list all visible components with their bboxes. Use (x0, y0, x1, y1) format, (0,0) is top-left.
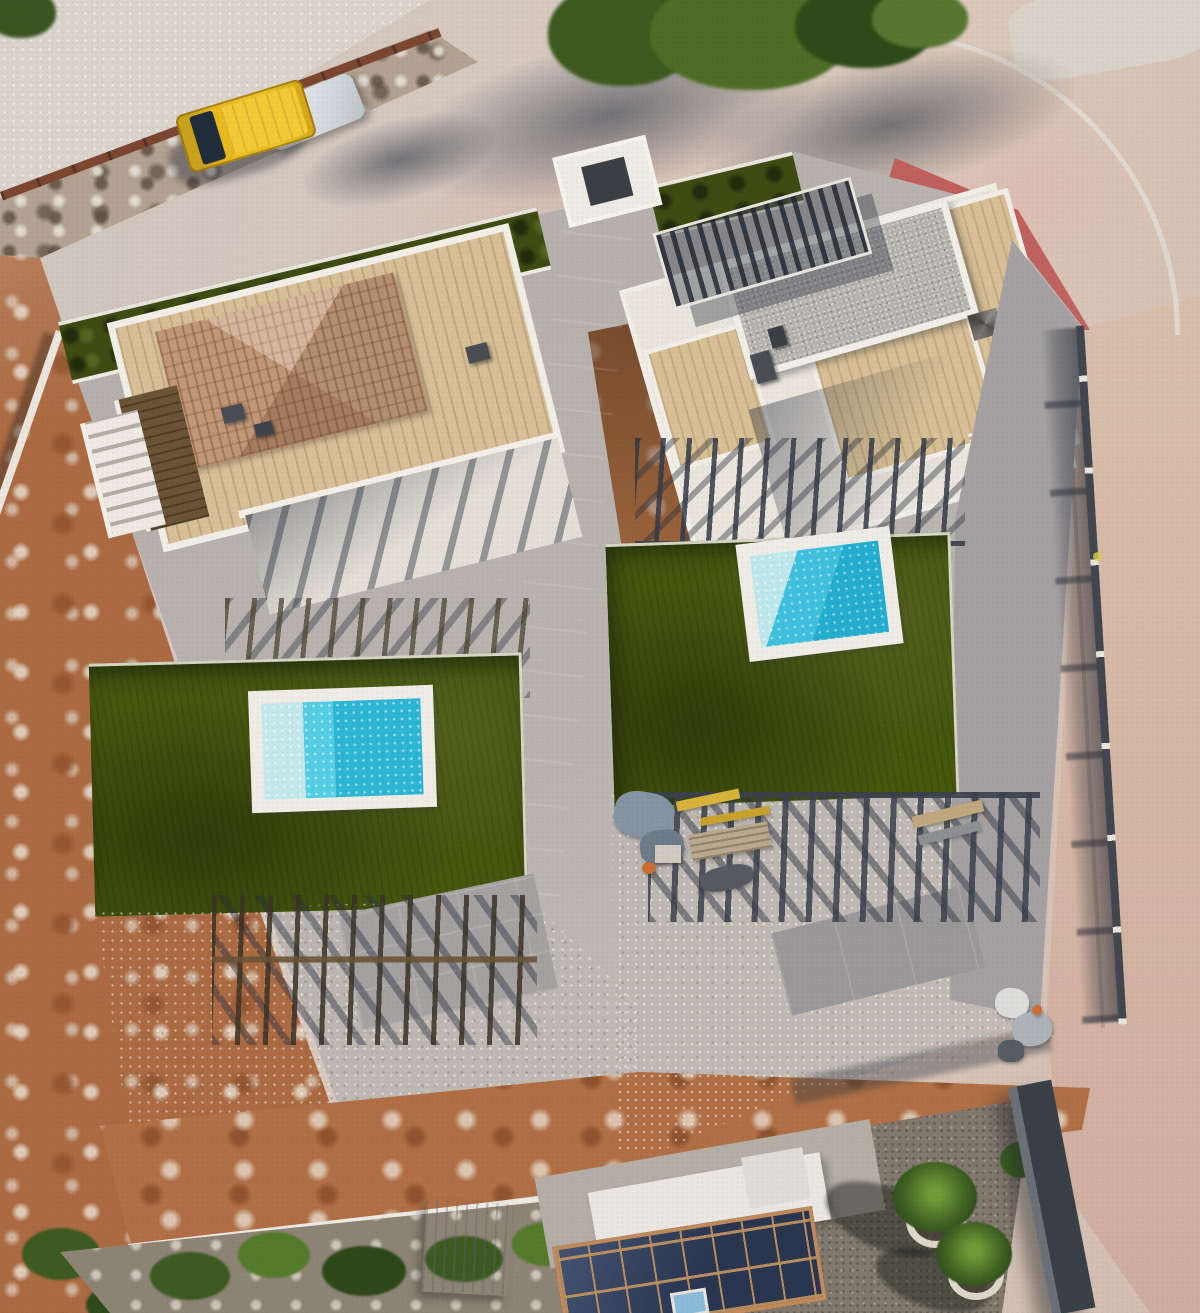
aerial-photo-stage (0, 0, 1200, 1313)
van-windshield (189, 110, 227, 165)
pool-a-water (261, 698, 423, 799)
gate-door (581, 157, 633, 206)
trash-bag (1032, 1005, 1042, 1015)
shrub (322, 1246, 406, 1296)
road-marking-dot (1093, 552, 1102, 561)
shrub (150, 1252, 230, 1300)
shrub (238, 1232, 310, 1278)
palm-tree (936, 1222, 1012, 1286)
skylight (670, 1288, 710, 1313)
orange-bucket (642, 862, 656, 874)
pool-b (735, 526, 903, 662)
pool-a (248, 685, 437, 813)
pool-b-water (750, 540, 889, 647)
palm-tree (893, 1162, 977, 1232)
metal-shed (422, 1200, 513, 1296)
trash-bag (998, 1040, 1024, 1062)
brick-stack (655, 845, 681, 863)
neighbor-roof-tower (741, 1147, 811, 1209)
